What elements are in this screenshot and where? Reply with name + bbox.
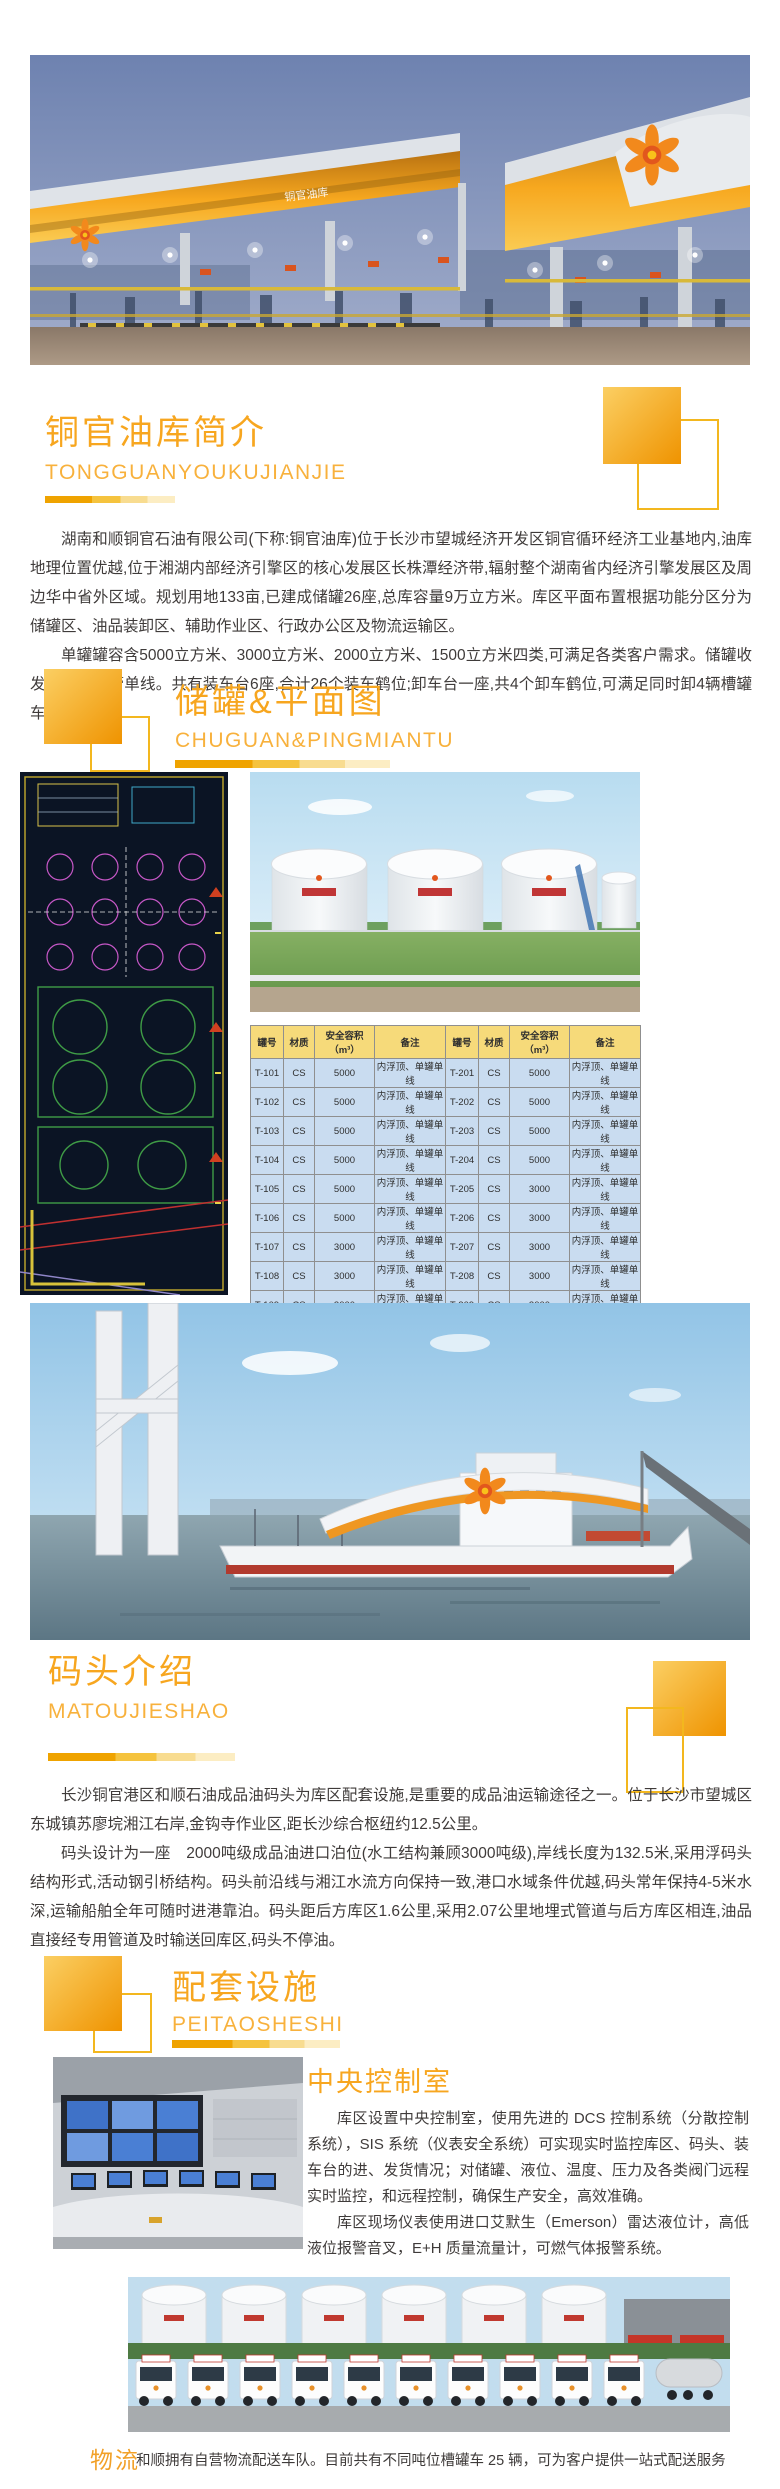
- table-cell: 5000: [315, 1175, 375, 1204]
- table-cell: T-103: [251, 1117, 284, 1146]
- table-cell: CS: [479, 1146, 510, 1175]
- dock-ship-photo: [30, 1303, 750, 1640]
- paragraph: 码头设计为一座 2000吨级成品油进口泊位(水工结构兼顾3000吨级),岸线长度…: [30, 1839, 752, 1955]
- logistics-label: 物流: [90, 2441, 140, 2475]
- table-cell: CS: [284, 1233, 315, 1262]
- paragraph: 长沙铜官港区和顺石油成品油码头为库区配套设施,是重要的成品油运输途径之一。位于长…: [30, 1781, 752, 1839]
- table-cell: 内浮顶、单罐单线: [570, 1262, 641, 1291]
- table-cell: 内浮顶、单罐单线: [570, 1117, 641, 1146]
- paragraph: 单罐罐容含5000立方米、3000立方米、2000立方米、1500立方米四类,可…: [30, 641, 752, 728]
- table-cell: T-203: [446, 1117, 479, 1146]
- table-cell: 内浮顶、单罐单线: [570, 1059, 641, 1088]
- table-cell: 内浮顶、单罐单线: [570, 1146, 641, 1175]
- table-cell: CS: [479, 1088, 510, 1117]
- table-row: T-101CS5000内浮顶、单罐单线T-201CS5000内浮顶、单罐单线: [251, 1059, 641, 1088]
- table-cell: CS: [479, 1233, 510, 1262]
- tank-table-header-cell: 罐号: [251, 1026, 284, 1059]
- table-row: T-106CS5000内浮顶、单罐单线T-206CS3000内浮顶、单罐单线: [251, 1204, 641, 1233]
- table-cell: 5000: [315, 1059, 375, 1088]
- table-cell: 内浮顶、单罐单线: [375, 1175, 446, 1204]
- table-cell: T-201: [446, 1059, 479, 1088]
- table-cell: T-208: [446, 1262, 479, 1291]
- tank-table-header-cell: 材质: [284, 1026, 315, 1059]
- paragraph: 库区设置中央控制室，使用先进的 DCS 控制系统（分散控制系统），SIS 系统（…: [307, 2106, 749, 2210]
- control-room-photo: [53, 2057, 303, 2249]
- logistics-text: 和顺拥有自营物流配送车队。目前共有不同吨位槽罐车 25 辆，可为客户提供一站式配…: [136, 2449, 736, 2470]
- table-cell: 5000: [315, 1146, 375, 1175]
- table-cell: 3000: [510, 1175, 570, 1204]
- table-cell: CS: [284, 1262, 315, 1291]
- table-cell: T-204: [446, 1146, 479, 1175]
- table-cell: CS: [284, 1117, 315, 1146]
- table-cell: 3000: [315, 1262, 375, 1291]
- table-cell: 3000: [510, 1204, 570, 1233]
- table-row: T-108CS3000内浮顶、单罐单线T-208CS3000内浮顶、单罐单线: [251, 1262, 641, 1291]
- table-cell: 内浮顶、单罐单线: [375, 1262, 446, 1291]
- section-tanks-pinyin: CHUGUAN&PINGMIANTU: [175, 729, 454, 752]
- table-cell: 内浮顶、单罐单线: [570, 1233, 641, 1262]
- table-cell: 5000: [315, 1088, 375, 1117]
- table-cell: CS: [479, 1059, 510, 1088]
- title-underline: [172, 2040, 340, 2048]
- table-cell: CS: [479, 1204, 510, 1233]
- tank-table-header-cell: 材质: [479, 1026, 510, 1059]
- tank-table-header-cell: 安全容积（m³）: [510, 1026, 570, 1059]
- table-cell: CS: [284, 1175, 315, 1204]
- table-cell: 内浮顶、单罐单线: [375, 1088, 446, 1117]
- table-cell: 5000: [510, 1117, 570, 1146]
- tank-table-header-cell: 罐号: [446, 1026, 479, 1059]
- table-cell: T-104: [251, 1146, 284, 1175]
- table-cell: T-205: [446, 1175, 479, 1204]
- tank-farm-photo: [250, 772, 640, 1012]
- table-cell: T-206: [446, 1204, 479, 1233]
- table-row: T-103CS5000内浮顶、单罐单线T-203CS5000内浮顶、单罐单线: [251, 1117, 641, 1146]
- section-facilities-title: 配套设施: [172, 1968, 320, 2009]
- table-cell: 3000: [510, 1262, 570, 1291]
- table-cell: T-105: [251, 1175, 284, 1204]
- dock-paragraphs: 长沙铜官港区和顺石油成品油码头为库区配套设施,是重要的成品油运输途径之一。位于长…: [30, 1781, 752, 1955]
- table-cell: 内浮顶、单罐单线: [375, 1117, 446, 1146]
- table-cell: CS: [479, 1175, 510, 1204]
- table-cell: 5000: [315, 1117, 375, 1146]
- decor-filled-square: [44, 1956, 122, 2031]
- table-cell: 3000: [510, 1233, 570, 1262]
- section-tanks-title: 储罐&平面图: [175, 682, 386, 723]
- tank-table-header-cell: 备注: [570, 1026, 641, 1059]
- table-cell: 内浮顶、单罐单线: [570, 1204, 641, 1233]
- table-cell: CS: [284, 1204, 315, 1233]
- table-cell: 内浮顶、单罐单线: [375, 1059, 446, 1088]
- intro-paragraphs: 湖南和顺铜官石油有限公司(下称:铜官油库)位于长沙市望城经济开发区铜官循环经济工…: [30, 525, 752, 728]
- table-cell: 内浮顶、单罐单线: [570, 1175, 641, 1204]
- table-cell: 5000: [315, 1204, 375, 1233]
- control-room-title: 中央控制室: [307, 2060, 452, 2099]
- table-cell: 内浮顶、单罐单线: [375, 1146, 446, 1175]
- table-cell: T-108: [251, 1262, 284, 1291]
- table-cell: T-106: [251, 1204, 284, 1233]
- title-underline: [45, 496, 175, 503]
- section-intro-title: 铜官油库简介: [45, 413, 267, 454]
- table-cell: T-107: [251, 1233, 284, 1262]
- table-cell: CS: [284, 1059, 315, 1088]
- table-cell: 内浮顶、单罐单线: [375, 1233, 446, 1262]
- tank-table-header-cell: 安全容积（m³）: [315, 1026, 375, 1059]
- section-dock-pinyin: MATOUJIESHAO: [48, 1700, 230, 1723]
- control-room-paragraphs: 库区设置中央控制室，使用先进的 DCS 控制系统（分散控制系统），SIS 系统（…: [307, 2106, 749, 2262]
- site-plan-cad-image: [20, 772, 228, 1295]
- truck-fleet-photo: [128, 2277, 730, 2432]
- table-cell: 3000: [315, 1233, 375, 1262]
- table-row: T-104CS5000内浮顶、单罐单线T-204CS5000内浮顶、单罐单线: [251, 1146, 641, 1175]
- decor-filled-square: [603, 387, 681, 464]
- section-intro-pinyin: TONGGUANYOUKUJIANJIE: [45, 461, 346, 484]
- table-cell: T-207: [446, 1233, 479, 1262]
- paragraph: 库区现场仪表使用进口艾默生（Emerson）雷达液位计，高低液位报警音叉，E+H…: [307, 2210, 749, 2262]
- hero-photo: 铜官油库: [30, 55, 750, 365]
- table-cell: CS: [479, 1262, 510, 1291]
- table-row: T-102CS5000内浮顶、单罐单线T-202CS5000内浮顶、单罐单线: [251, 1088, 641, 1117]
- table-cell: CS: [479, 1117, 510, 1146]
- brochure-page: 铜官油库: [0, 0, 780, 2489]
- table-cell: CS: [284, 1088, 315, 1117]
- table-cell: 5000: [510, 1146, 570, 1175]
- table-cell: 内浮顶、单罐单线: [375, 1204, 446, 1233]
- section-facilities-pinyin: PEITAOSHESHI: [172, 2013, 344, 2036]
- tank-table-header-row: 罐号材质安全容积（m³）备注罐号材质安全容积（m³）备注: [251, 1026, 641, 1059]
- table-cell: 5000: [510, 1088, 570, 1117]
- table-cell: 内浮顶、单罐单线: [570, 1088, 641, 1117]
- title-underline: [175, 760, 390, 768]
- tank-table-header-cell: 备注: [375, 1026, 446, 1059]
- table-row: T-105CS5000内浮顶、单罐单线T-205CS3000内浮顶、单罐单线: [251, 1175, 641, 1204]
- table-cell: T-101: [251, 1059, 284, 1088]
- section-dock-title: 码头介绍: [48, 1652, 196, 1693]
- title-underline: [48, 1753, 235, 1761]
- table-cell: T-102: [251, 1088, 284, 1117]
- table-row: T-107CS3000内浮顶、单罐单线T-207CS3000内浮顶、单罐单线: [251, 1233, 641, 1262]
- decor-filled-square: [44, 669, 122, 744]
- paragraph: 湖南和顺铜官石油有限公司(下称:铜官油库)位于长沙市望城经济开发区铜官循环经济工…: [30, 525, 752, 641]
- table-cell: CS: [284, 1146, 315, 1175]
- table-cell: 5000: [510, 1059, 570, 1088]
- table-cell: T-202: [446, 1088, 479, 1117]
